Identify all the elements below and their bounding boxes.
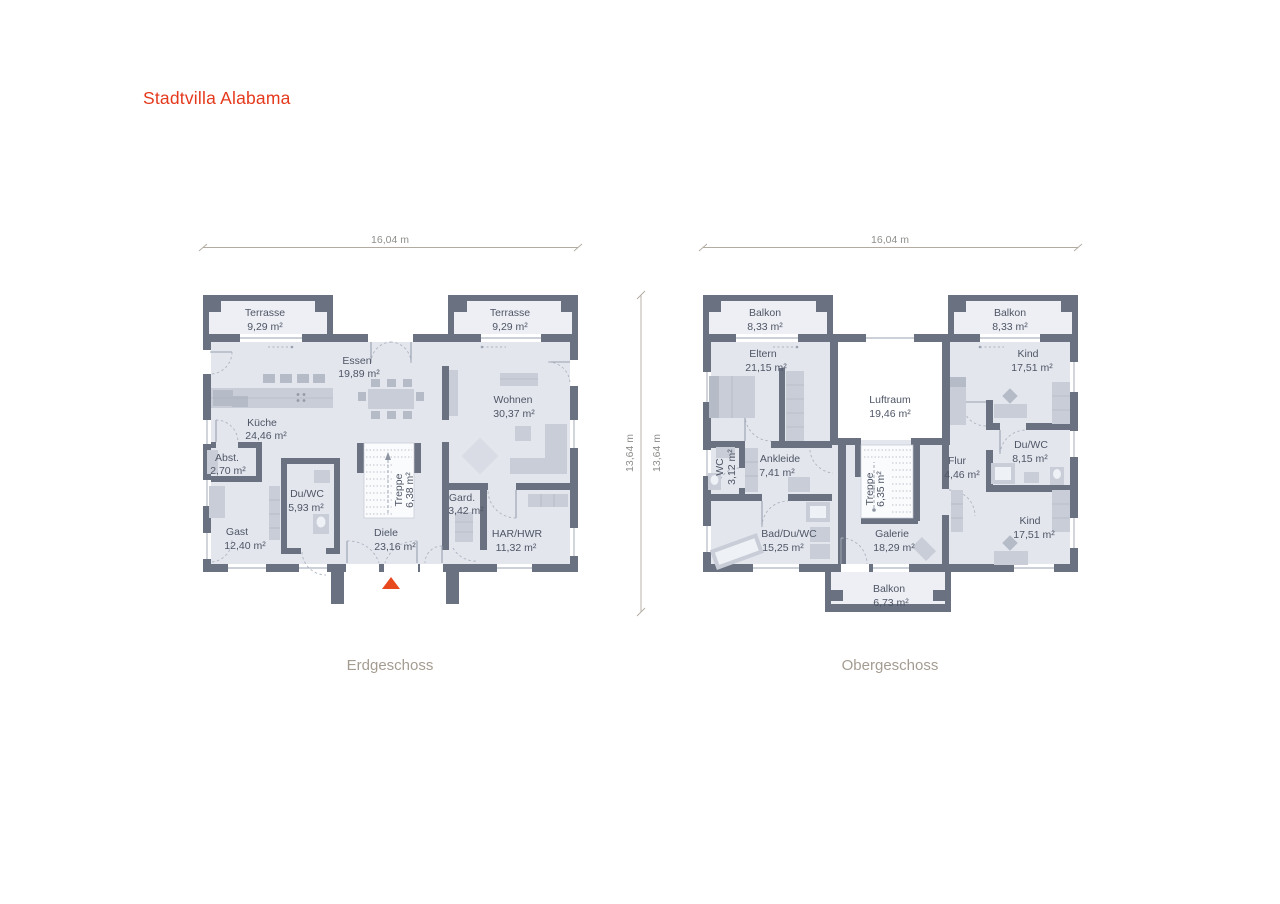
svg-text:17,51 m²: 17,51 m² xyxy=(1011,362,1053,374)
floorplans-canvas: 16,04 m 16,04 m 13,64 m 13,64 m xyxy=(0,0,1280,904)
room-label-flur: Flur xyxy=(948,455,967,467)
room-label-diele: Diele xyxy=(374,527,398,539)
room-label-kind-top: Kind xyxy=(1017,348,1038,360)
svg-text:19,89 m²: 19,89 m² xyxy=(338,368,380,380)
svg-text:18,29 m²: 18,29 m² xyxy=(873,542,915,554)
room-label-balkon-r: Balkon xyxy=(994,307,1026,319)
entrance-arrow-icon xyxy=(382,577,400,589)
page: Stadtvilla Alabama 16,04 m 16,04 m 13,64… xyxy=(0,0,1280,904)
room-label-wc: WC xyxy=(714,458,726,476)
dimension-width-og: 16,04 m xyxy=(871,234,909,246)
svg-text:6,38 m²: 6,38 m² xyxy=(404,472,416,508)
parents-bed xyxy=(709,376,755,418)
svg-text:4,46 m²: 4,46 m² xyxy=(944,469,980,481)
svg-text:23,16 m²: 23,16 m² xyxy=(374,541,416,553)
room-label-gast: Gast xyxy=(226,526,248,538)
svg-text:11,32 m²: 11,32 m² xyxy=(496,542,537,554)
room-label-balkon-l: Balkon xyxy=(749,307,781,319)
room-label-terrasse-r: Terrasse xyxy=(490,307,530,319)
svg-text:8,33 m²: 8,33 m² xyxy=(992,321,1028,333)
room-label-terrasse-l: Terrasse xyxy=(245,307,285,319)
svg-text:21,15 m²: 21,15 m² xyxy=(745,362,787,374)
room-label-bad-du-wc: Bad/Du/WC xyxy=(761,528,817,540)
room-label-abst: Abst. xyxy=(215,452,239,464)
svg-text:9,29 m²: 9,29 m² xyxy=(492,321,528,333)
floorplan-obergeschoss: Balkon 8,33 m² Balkon 8,33 m² Eltern 21,… xyxy=(703,295,1078,612)
svg-text:24,46 m²: 24,46 m² xyxy=(245,430,287,442)
svg-text:6,35 m²: 6,35 m² xyxy=(875,471,887,507)
caption-erdgeschoss: Erdgeschoss xyxy=(347,657,434,674)
room-label-luftraum: Luftraum xyxy=(869,394,911,406)
room-label-kind-bottom: Kind xyxy=(1019,515,1040,527)
room-label-eltern: Eltern xyxy=(749,348,777,360)
svg-text:30,37 m²: 30,37 m² xyxy=(493,408,535,420)
room-label-wohnen: Wohnen xyxy=(494,394,533,406)
svg-text:19,46 m²: 19,46 m² xyxy=(869,408,911,420)
room-label-og-duwc: Du/WC xyxy=(1014,439,1048,451)
room-label-ankleide: Ankleide xyxy=(760,453,800,465)
floorplan-erdgeschoss: Terrasse 9,29 m² Terrasse 9,29 m² Essen … xyxy=(203,295,578,604)
svg-text:17,51 m²: 17,51 m² xyxy=(1013,529,1055,541)
svg-text:6,73 m²: 6,73 m² xyxy=(873,597,909,609)
room-label-kueche: Küche xyxy=(247,417,277,429)
svg-text:8,15 m²: 8,15 m² xyxy=(1012,453,1048,465)
svg-text:7,41 m²: 7,41 m² xyxy=(759,467,795,479)
room-label-eg-duwc: Du/WC xyxy=(290,488,324,500)
dimension-width-eg: 16,04 m xyxy=(371,234,409,246)
svg-text:3,42 m²: 3,42 m² xyxy=(448,505,484,517)
room-label-essen: Essen xyxy=(342,355,371,367)
dimension-height-og: 13,64 m xyxy=(651,434,663,472)
wardrobe xyxy=(786,371,804,441)
svg-text:8,33 m²: 8,33 m² xyxy=(747,321,783,333)
svg-text:5,93 m²: 5,93 m² xyxy=(288,502,324,514)
caption-obergeschoss: Obergeschoss xyxy=(842,657,939,674)
room-label-galerie: Galerie xyxy=(875,528,909,540)
svg-text:15,25 m²: 15,25 m² xyxy=(762,542,804,554)
svg-text:3,12 m²: 3,12 m² xyxy=(726,449,738,485)
dimension-height-eg: 13,64 m xyxy=(624,434,636,472)
room-label-gard: Gard. xyxy=(449,492,475,504)
room-label-har-hwr: HAR/HWR xyxy=(492,528,543,540)
svg-text:2,70 m²: 2,70 m² xyxy=(210,465,246,477)
svg-text:9,29 m²: 9,29 m² xyxy=(247,321,283,333)
room-label-balkon-bottom: Balkon xyxy=(873,583,905,595)
svg-text:12,40 m²: 12,40 m² xyxy=(224,540,266,552)
